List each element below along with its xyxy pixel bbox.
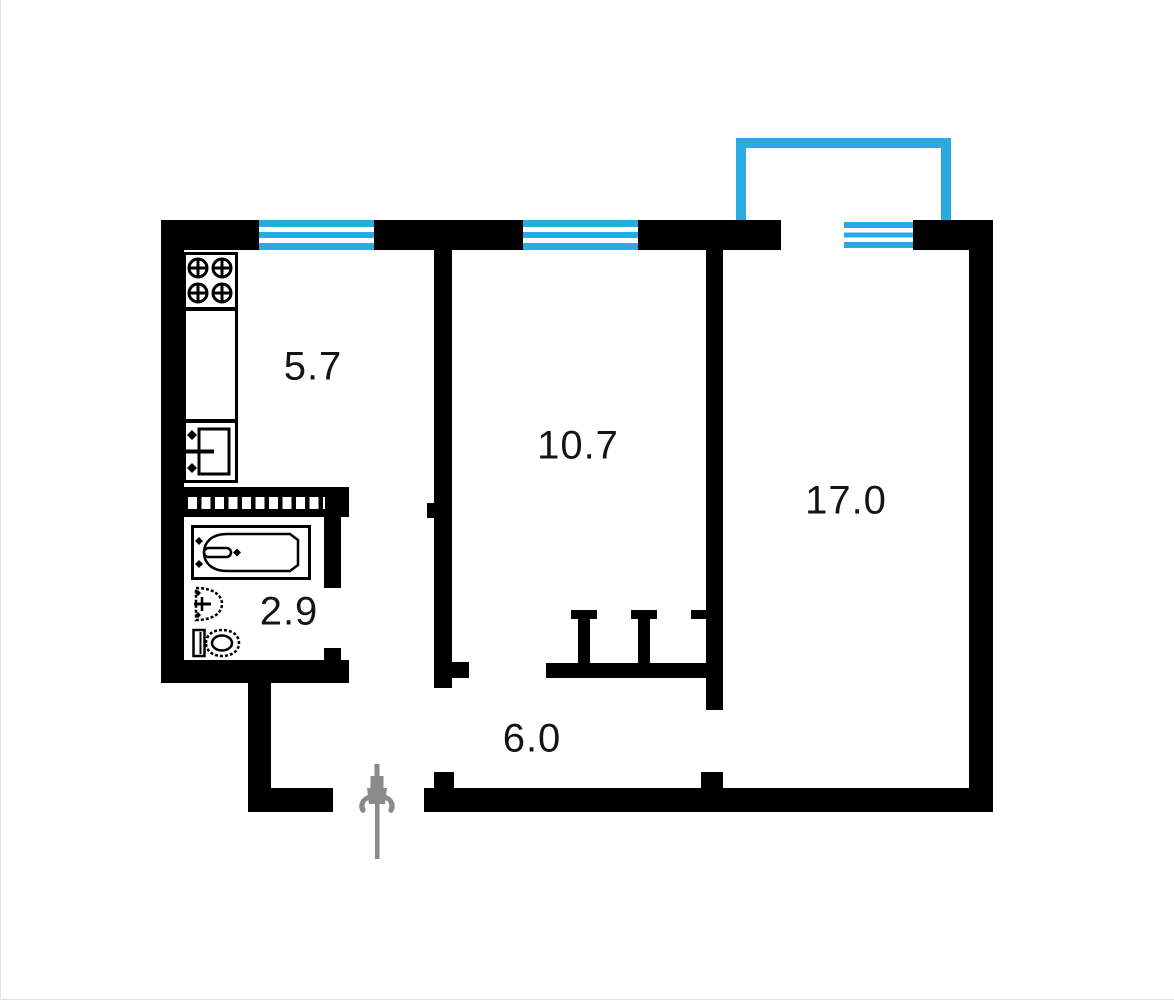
wardrobe-divider-cap (631, 610, 657, 619)
floor-plan: 5.7 10.7 17.0 2.9 6.0 (0, 0, 1174, 1000)
bathtub-icon (191, 525, 311, 580)
room-label-bathroom: 2.9 (260, 590, 319, 635)
balcony-outline (736, 138, 951, 222)
wardrobe-shelf (546, 663, 706, 678)
entrance-arrow-icon (357, 764, 397, 860)
wall-bottom-jamb-mid (701, 772, 723, 788)
stove-icon (183, 252, 238, 310)
wall-bathroom-right-upper (324, 517, 341, 588)
toilet-icon (192, 626, 244, 660)
wall-bathroom-door-jamb (324, 648, 341, 660)
wall-living-left-jamb (427, 503, 434, 518)
wall-bottom-jamb-left (434, 772, 454, 788)
wall-bedroom-left (706, 248, 723, 710)
kitchen-counter-icon (183, 308, 238, 422)
wall-bathroom-bottom (161, 660, 349, 683)
wardrobe-divider-stem (578, 619, 590, 663)
room-label-hallway: 6.0 (503, 717, 562, 762)
wall-top-segment-3 (638, 220, 781, 250)
wall-right-outer (969, 222, 993, 812)
wardrobe-divider-stem (638, 619, 650, 663)
wall-left-outer (161, 220, 184, 683)
wardrobe-divider-cap (691, 610, 706, 619)
wall-living-left-flange (452, 662, 469, 678)
room-label-bedroom: 17.0 (805, 479, 887, 524)
dashed-wall-pattern (188, 497, 325, 509)
washbasin-icon (192, 586, 226, 622)
kitchen-sink-icon (183, 420, 238, 483)
room-label-kitchen: 5.7 (284, 345, 343, 390)
wall-living-left (434, 245, 452, 688)
wall-bathroom-dashed-partition (179, 487, 349, 517)
wardrobe-divider-cap (571, 610, 597, 619)
wall-bottom-outer (424, 788, 993, 812)
window-balcony-icon (844, 222, 913, 248)
window-kitchen-icon (259, 220, 374, 250)
window-living-icon (523, 220, 638, 250)
room-label-living: 10.7 (537, 424, 619, 469)
wall-entry-bottom (248, 788, 333, 812)
